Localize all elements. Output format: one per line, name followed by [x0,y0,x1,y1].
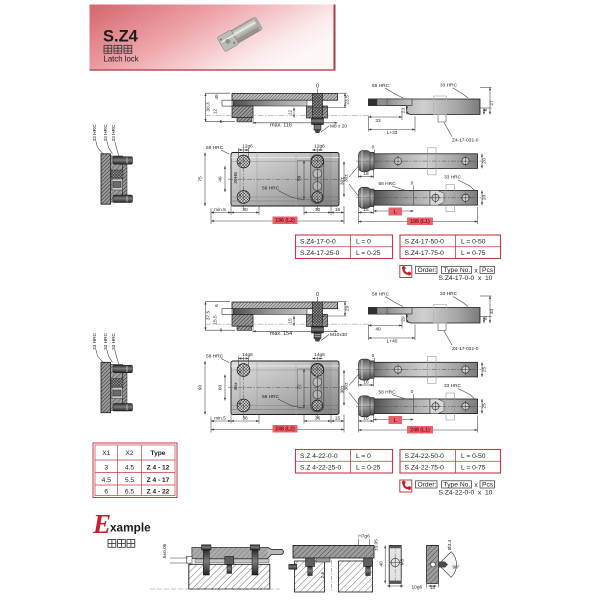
svg-text:6.5: 6.5 [125,489,135,496]
svg-text:33 HRC: 33 HRC [444,175,462,181]
svg-text:58: 58 [297,176,303,182]
svg-text:0: 0 [411,181,414,187]
svg-text:Z 4 - 17: Z 4 - 17 [147,477,170,484]
svg-text:58 HRC: 58 HRC [379,390,397,396]
svg-text:S.Z4-22-75-0: S.Z4-22-75-0 [405,465,445,472]
svg-text:25: 25 [482,403,488,409]
svg-text:xample: xample [110,521,151,535]
svg-text:33 HRC: 33 HRC [440,83,458,89]
svg-text:46: 46 [218,176,224,182]
svg-text:4.5: 4.5 [125,465,135,472]
svg-text:x: x [474,482,478,489]
svg-text:Ø3.4: Ø3.4 [447,539,453,550]
svg-text:6: 6 [104,489,108,496]
svg-text:S.Z 4-22-25-0: S.Z 4-22-25-0 [300,465,342,472]
svg-text:L = 0: L = 0 [356,453,371,460]
svg-text:5: 5 [220,119,223,125]
svg-text:Order:: Order: [418,267,437,274]
svg-text:S.Z4: S.Z4 [103,28,139,46]
svg-text:H7g6: H7g6 [358,534,370,540]
svg-text:33 HRC: 33 HRC [111,332,117,350]
svg-text:S.Z4-17-75-0: S.Z4-17-75-0 [405,250,445,257]
svg-text:14g6: 14g6 [314,352,325,358]
svg-text:6: 6 [214,304,220,307]
svg-text:58 HRC: 58 HRC [372,83,390,89]
svg-text:15: 15 [363,171,369,177]
svg-text:S.Z 4-22-0-0: S.Z 4-22-0-0 [300,453,338,460]
svg-text:L = 0-50: L = 0-50 [461,453,486,460]
svg-text:58 HRC: 58 HRC [372,292,390,298]
svg-text:40: 40 [378,561,384,567]
svg-text:15: 15 [335,416,341,422]
svg-text:196 (L2): 196 (L2) [275,218,295,224]
svg-text:248 (L1): 248 (L1) [410,428,430,434]
svg-text:33 HRC: 33 HRC [92,124,98,142]
svg-text:60: 60 [218,385,224,391]
svg-text:Z 4 - 22: Z 4 - 22 [147,489,170,496]
svg-text:72: 72 [297,384,303,390]
svg-text:S.Z4-22-50-0: S.Z4-22-50-0 [405,453,445,460]
svg-text:33 HRC: 33 HRC [444,383,462,389]
svg-text:Pcs: Pcs [482,482,494,489]
svg-text:15: 15 [363,207,369,213]
svg-text:L = 0: L = 0 [356,238,371,245]
svg-text:S.Z4-22-0-0 x 10: S.Z4-22-0-0 x 10 [439,490,493,497]
svg-text:33 HRC: 33 HRC [103,332,109,350]
svg-text:16: 16 [363,416,369,422]
svg-text:min.5: min.5 [214,207,226,213]
svg-text:12: 12 [213,109,219,115]
svg-text:10g6: 10g6 [412,585,423,591]
svg-text:Type No.: Type No. [444,267,471,274]
svg-text:58 HRC: 58 HRC [262,394,280,400]
svg-text:Z4-17-031-0: Z4-17-031-0 [452,138,479,144]
svg-text:0: 0 [372,145,375,151]
svg-text:3: 3 [104,465,108,472]
svg-text:38±: 38± [233,382,239,390]
svg-text:36: 36 [315,416,321,422]
svg-text:L+40: L+40 [387,339,398,345]
svg-text:12: 12 [288,110,294,116]
svg-text:L = 0-25: L = 0-25 [356,465,381,472]
svg-text:30±: 30± [340,177,346,185]
svg-text:L = 0-75: L = 0-75 [461,250,486,257]
svg-text:15: 15 [288,318,294,324]
svg-text:75: 75 [198,176,204,182]
svg-text:90: 90 [198,385,204,391]
svg-text:Z 4 - 12: Z 4 - 12 [147,465,170,472]
svg-text:Order:: Order: [418,482,437,489]
svg-text:Latch lock: Latch lock [104,55,139,64]
svg-text:12g6: 12g6 [242,144,253,150]
svg-text:37.5: 37.5 [206,311,212,321]
svg-text:5±0.05: 5±0.05 [162,543,168,558]
svg-text:X2: X2 [125,450,133,457]
svg-text:2.5: 2.5 [320,571,326,578]
svg-text:20: 20 [482,158,488,164]
svg-text:Pcs: Pcs [482,267,494,274]
svg-text:x: x [474,268,478,275]
svg-text:33 HRC: 33 HRC [103,124,109,142]
svg-text:M10x30: M10x30 [330,332,347,338]
svg-text:36: 36 [242,416,248,422]
svg-text:29: 29 [401,316,407,322]
svg-text:S.Z4-17-0-0 x 10: S.Z4-17-0-0 x 10 [439,275,493,282]
svg-text:15.5: 15.5 [213,315,219,325]
svg-text:0: 0 [372,353,375,359]
svg-text:23.5: 23.5 [344,95,350,105]
svg-text:30.3: 30.3 [206,102,212,112]
svg-text:Type No.: Type No. [444,482,471,489]
svg-text:33 HRC: 33 HRC [440,291,458,297]
svg-text:Type: Type [151,450,166,457]
svg-text:33: 33 [375,118,381,124]
svg-text:40: 40 [375,326,381,332]
svg-text:30: 30 [315,207,321,213]
svg-text:max. 154: max. 154 [270,331,292,337]
svg-text:30H8: 30H8 [233,172,239,184]
svg-text:23: 23 [401,108,407,114]
svg-text:196 (L1): 196 (L1) [410,219,430,225]
svg-text:S.Z4-17-25-0: S.Z4-17-25-0 [300,250,340,257]
svg-text:90°: 90° [452,565,459,571]
svg-text:25: 25 [482,367,488,373]
svg-text:±0.05: ±0.05 [374,539,380,551]
svg-text:30: 30 [242,207,248,213]
svg-text:6: 6 [483,108,489,111]
svg-text:45: 45 [214,94,220,100]
svg-text:27: 27 [489,100,495,106]
svg-text:max. 116: max. 116 [270,123,292,129]
svg-text:S.Z4-17-50-0: S.Z4-17-50-0 [405,238,445,245]
svg-text:L = 0-50: L = 0-50 [461,238,486,245]
svg-text:33: 33 [489,309,495,315]
svg-text:min.5: min.5 [214,416,226,422]
svg-text:248 (L2): 248 (L2) [275,427,295,433]
svg-text:33 HRC: 33 HRC [92,332,98,350]
svg-text:6: 6 [220,328,223,334]
svg-text:4.5: 4.5 [102,477,112,484]
svg-text:L = 0-75: L = 0-75 [461,465,486,472]
svg-text:S.Z4-17-0-0: S.Z4-17-0-0 [300,238,336,245]
svg-text:38±: 38± [340,385,346,393]
svg-text:6: 6 [483,317,489,320]
svg-text:20: 20 [482,195,488,201]
svg-text:0: 0 [411,389,414,395]
svg-text:M5: M5 [399,558,405,565]
svg-text:M8 x 20: M8 x 20 [330,124,347,130]
svg-text:33 HRC: 33 HRC [111,124,117,142]
svg-text:16: 16 [363,380,369,386]
svg-text:29: 29 [344,306,350,312]
svg-text:58 HRC: 58 HRC [262,186,280,192]
svg-text:58 HRC: 58 HRC [379,181,397,187]
svg-text:E: E [92,509,111,539]
svg-text:L+33: L+33 [387,130,398,136]
svg-text:12g6: 12g6 [314,144,325,150]
svg-text:Z4-17-031-0: Z4-17-031-0 [452,346,479,352]
svg-text:14g6: 14g6 [242,352,253,358]
svg-text:15: 15 [335,207,341,213]
svg-text:X1: X1 [102,450,110,457]
svg-text:L = 0-25: L = 0-25 [356,250,381,257]
svg-text:5.5: 5.5 [125,477,135,484]
